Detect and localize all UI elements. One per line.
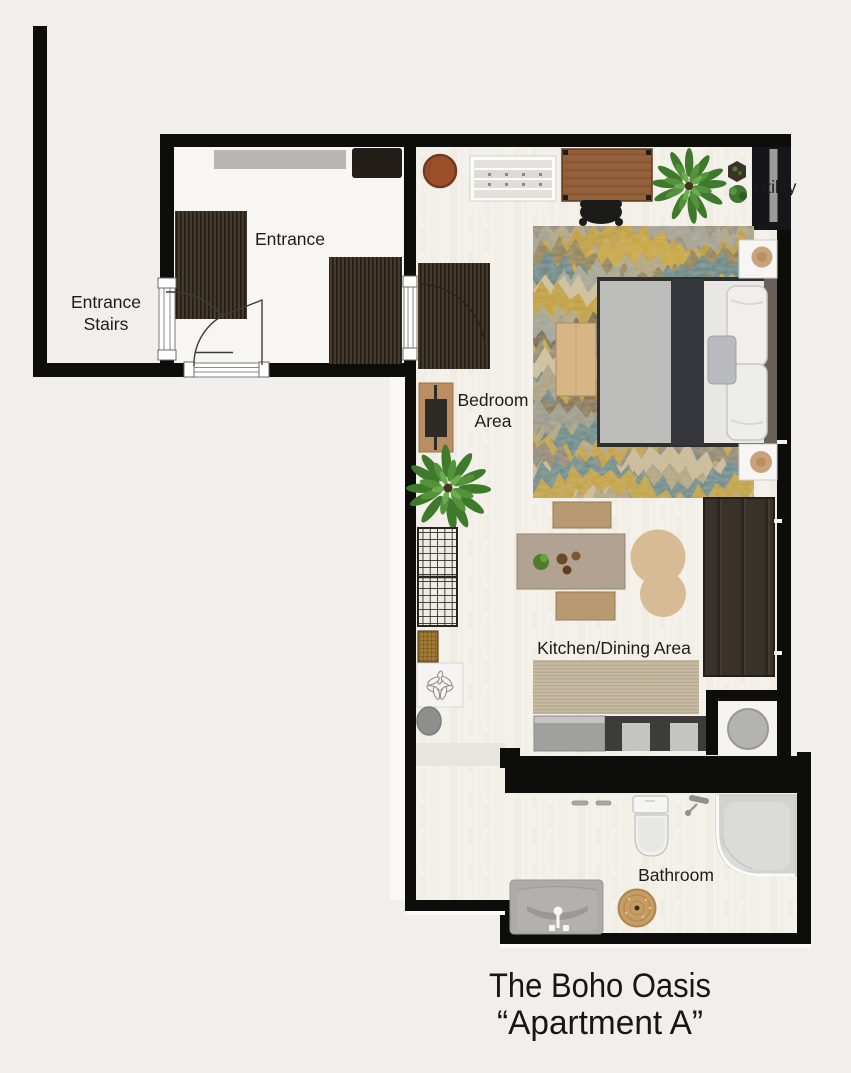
svg-text:Area: Area [475,411,512,431]
svg-text:“Apartment A”: “Apartment A” [497,1004,703,1042]
svg-text:Entrance: Entrance [255,229,325,249]
svg-text:Stairs: Stairs [84,314,129,334]
svg-text:Bedroom: Bedroom [457,390,528,410]
svg-text:Bathroom: Bathroom [638,865,714,885]
svg-text:Utility: Utility [754,177,797,197]
svg-text:Entrance: Entrance [71,292,141,312]
svg-text:Kitchen/Dining Area: Kitchen/Dining Area [537,638,691,658]
svg-text:The Boho Oasis: The Boho Oasis [489,967,711,1005]
